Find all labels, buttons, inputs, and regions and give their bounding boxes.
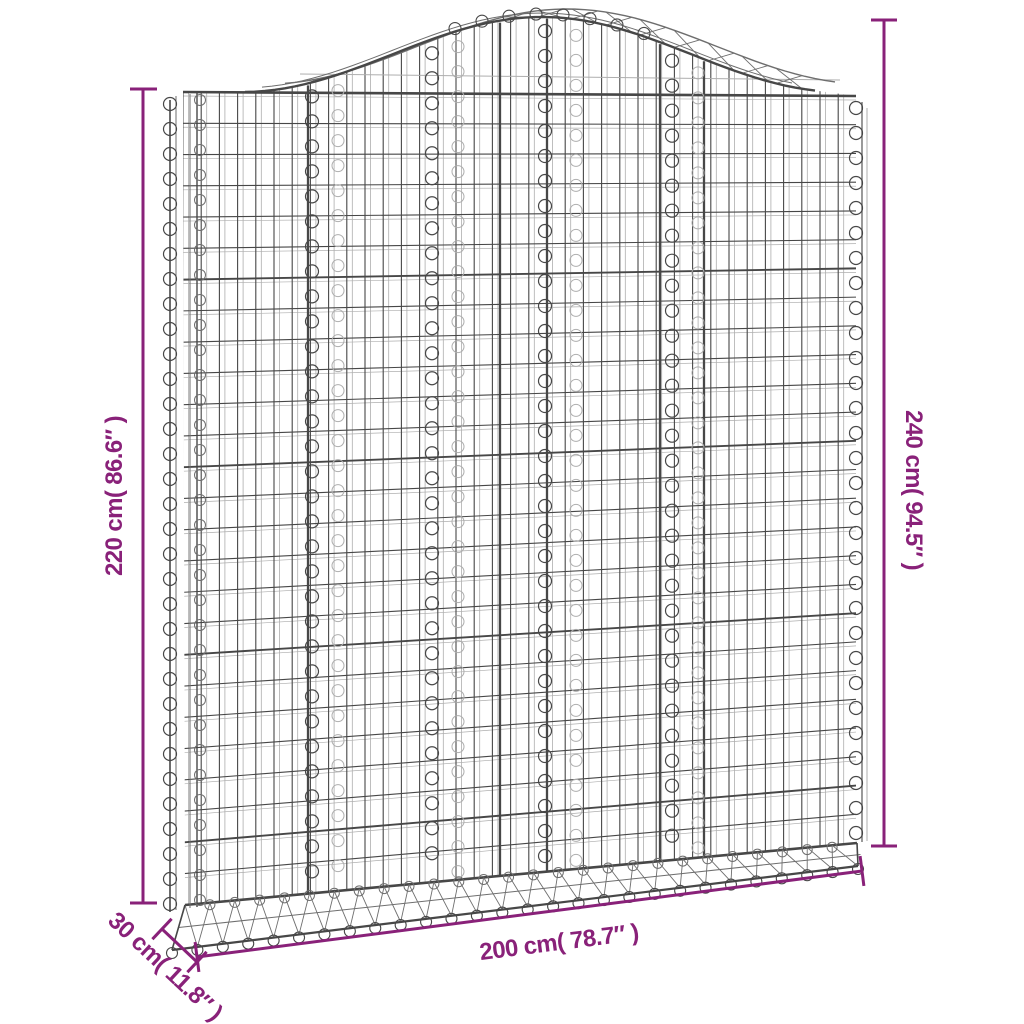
front-mesh (183, 8, 856, 918)
width-label: 200 cm( 78.7″ ) (478, 919, 640, 966)
height-right-label: 240 cm( 94.5″ ) (900, 410, 927, 570)
height-left-label: 220 cm( 86.6″ ) (101, 416, 128, 576)
gabion-basket-illustration: 220 cm( 86.6″ ) 240 cm( 94.5″ ) 200 cm( … (0, 0, 1024, 1024)
product-image-canvas: 220 cm( 86.6″ ) 240 cm( 94.5″ ) 200 cm( … (0, 0, 1024, 1024)
height-right-dimension: 240 cm( 94.5″ ) (871, 20, 927, 846)
gabion-basket (164, 8, 868, 959)
dimension-cap (860, 856, 864, 886)
height-left-dimension: 220 cm( 86.6″ ) (101, 89, 157, 903)
